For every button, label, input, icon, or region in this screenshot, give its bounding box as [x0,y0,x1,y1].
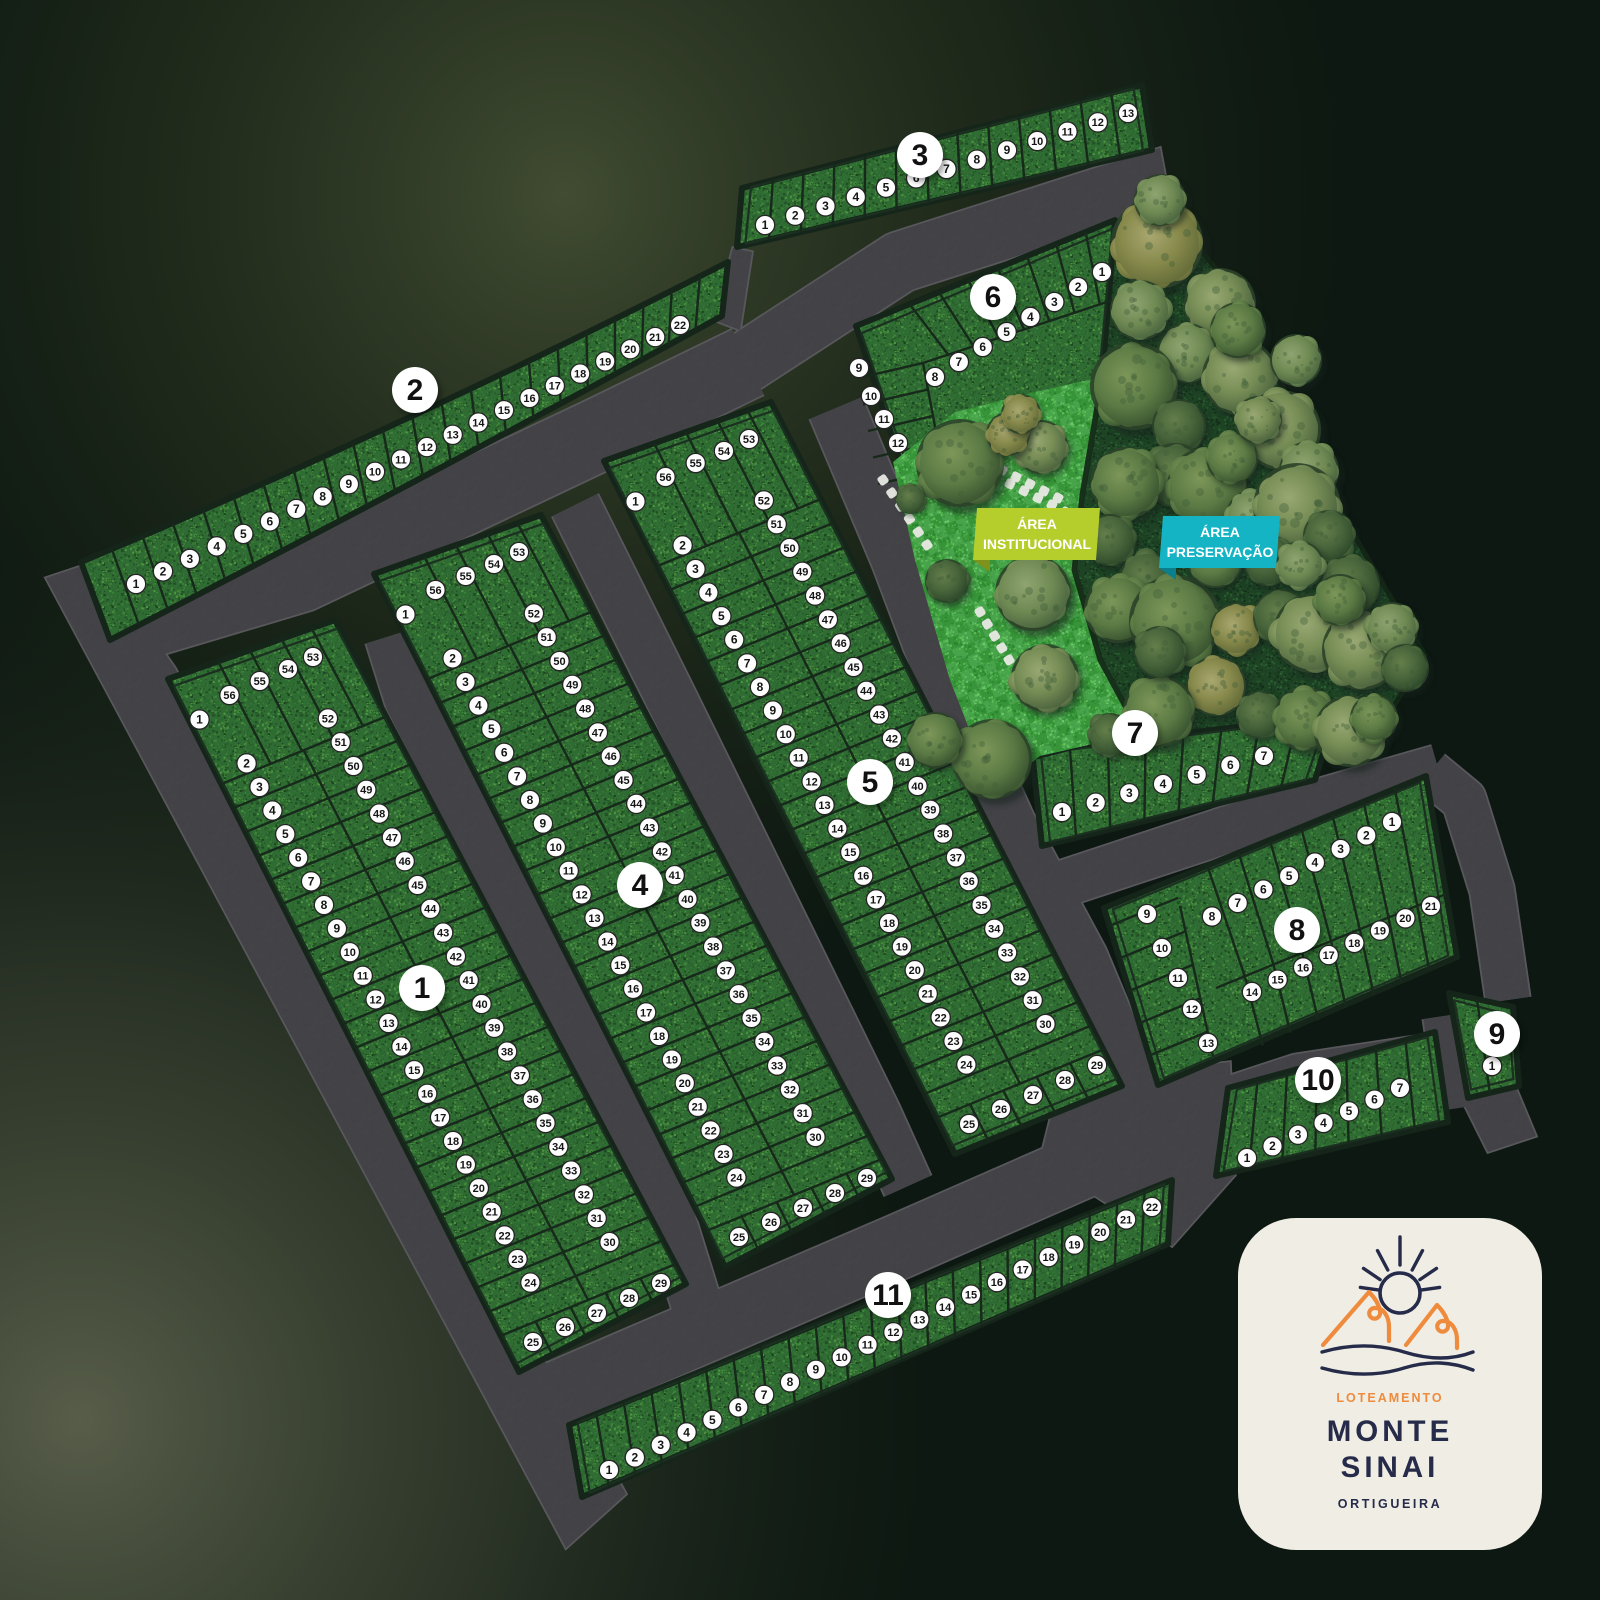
svg-text:INSTITUCIONAL: INSTITUCIONAL [983,536,1092,552]
svg-text:24: 24 [730,1173,743,1185]
svg-text:1: 1 [1489,1059,1496,1073]
svg-text:29: 29 [861,1173,873,1185]
svg-text:53: 53 [307,652,319,664]
svg-text:2: 2 [449,651,456,665]
svg-text:52: 52 [322,713,334,725]
svg-text:27: 27 [797,1203,809,1215]
svg-text:3: 3 [256,780,263,794]
svg-text:10: 10 [369,467,381,479]
svg-text:43: 43 [437,928,449,940]
svg-text:9: 9 [1489,1018,1506,1051]
svg-text:1: 1 [1244,1151,1251,1165]
svg-text:22: 22 [498,1230,510,1242]
svg-text:31: 31 [1027,995,1039,1007]
svg-text:55: 55 [690,458,702,470]
svg-text:56: 56 [659,472,671,484]
svg-text:35: 35 [975,900,987,912]
svg-text:9: 9 [334,922,341,936]
svg-text:2: 2 [160,564,167,578]
svg-text:6: 6 [979,340,986,354]
svg-text:8: 8 [787,1375,794,1389]
svg-text:7: 7 [744,656,751,670]
svg-text:53: 53 [513,547,525,559]
svg-text:9: 9 [770,704,777,718]
svg-text:19: 19 [1374,926,1386,938]
svg-text:13: 13 [447,430,459,442]
svg-text:39: 39 [924,805,936,817]
svg-text:16: 16 [1297,962,1309,974]
svg-text:15: 15 [498,405,510,417]
svg-text:33: 33 [1001,948,1013,960]
svg-text:8: 8 [1289,914,1306,947]
svg-text:11: 11 [862,1340,874,1352]
svg-text:13: 13 [382,1018,394,1030]
svg-text:12: 12 [369,994,381,1006]
svg-text:40: 40 [475,999,487,1011]
svg-text:18: 18 [653,1031,665,1043]
svg-text:5: 5 [718,609,725,623]
svg-text:18: 18 [1042,1252,1054,1264]
svg-text:7: 7 [1397,1081,1404,1095]
svg-text:48: 48 [579,704,591,716]
svg-text:10: 10 [550,842,562,854]
svg-text:51: 51 [335,737,347,749]
svg-text:20: 20 [909,965,921,977]
svg-text:4: 4 [1027,310,1034,324]
svg-text:6: 6 [1227,758,1234,772]
svg-text:20: 20 [1399,913,1411,925]
svg-text:5: 5 [1286,869,1293,883]
svg-text:ORTIGUEIRA: ORTIGUEIRA [1338,1497,1442,1511]
svg-text:6: 6 [735,1400,742,1414]
svg-text:7: 7 [1261,749,1268,763]
svg-text:34: 34 [552,1142,565,1154]
svg-text:20: 20 [1094,1227,1106,1239]
svg-text:21: 21 [922,989,934,1001]
svg-text:55: 55 [254,676,266,688]
svg-text:11: 11 [793,753,805,765]
svg-text:3: 3 [1337,842,1344,856]
svg-text:2: 2 [1269,1139,1276,1153]
svg-text:5: 5 [240,527,247,541]
svg-text:1: 1 [133,577,140,591]
svg-text:9: 9 [856,361,863,375]
svg-text:12: 12 [892,438,904,450]
svg-text:49: 49 [566,680,578,692]
svg-text:MONTE: MONTE [1327,1415,1454,1448]
svg-text:5: 5 [1193,768,1200,782]
svg-text:13: 13 [1202,1038,1214,1050]
svg-text:19: 19 [599,356,611,368]
svg-text:16: 16 [991,1277,1003,1289]
svg-text:23: 23 [511,1254,523,1266]
svg-text:17: 17 [1323,950,1335,962]
svg-text:13: 13 [588,913,600,925]
svg-text:4: 4 [1320,1116,1327,1130]
svg-text:15: 15 [1271,975,1283,987]
svg-text:31: 31 [797,1108,809,1120]
svg-text:7: 7 [1234,896,1241,910]
svg-text:39: 39 [694,918,706,930]
svg-text:12: 12 [1186,1004,1198,1016]
svg-text:50: 50 [783,543,795,555]
svg-text:35: 35 [745,1013,757,1025]
svg-text:40: 40 [911,781,923,793]
svg-text:54: 54 [488,559,501,571]
svg-text:5: 5 [883,181,890,195]
svg-text:6: 6 [267,514,274,528]
svg-text:1: 1 [414,972,431,1005]
svg-text:7: 7 [514,769,521,783]
svg-text:7: 7 [1127,717,1144,750]
svg-text:2: 2 [1092,796,1099,810]
svg-text:17: 17 [434,1112,446,1124]
svg-text:3: 3 [187,552,194,566]
svg-text:19: 19 [1068,1240,1080,1252]
svg-text:54: 54 [718,446,731,458]
svg-text:38: 38 [501,1047,513,1059]
svg-text:12: 12 [575,889,587,901]
svg-text:2: 2 [1363,828,1370,842]
svg-text:14: 14 [472,417,485,429]
svg-text:44: 44 [630,799,643,811]
svg-text:18: 18 [447,1136,459,1148]
svg-text:36: 36 [527,1094,539,1106]
svg-text:48: 48 [809,591,821,603]
svg-text:19: 19 [896,942,908,954]
svg-text:13: 13 [1122,108,1134,120]
svg-text:48: 48 [373,809,385,821]
svg-text:26: 26 [559,1322,571,1334]
svg-text:1: 1 [606,1463,613,1477]
svg-text:23: 23 [717,1149,729,1161]
svg-text:4: 4 [1160,777,1167,791]
svg-text:26: 26 [765,1217,777,1229]
svg-text:44: 44 [424,904,437,916]
svg-text:1: 1 [402,607,409,621]
svg-text:2: 2 [1075,280,1082,294]
svg-text:1: 1 [1059,805,1066,819]
svg-text:8: 8 [757,680,764,694]
svg-text:14: 14 [831,824,844,836]
svg-text:29: 29 [1091,1060,1103,1072]
svg-text:3: 3 [1295,1128,1302,1142]
svg-text:31: 31 [591,1213,603,1225]
svg-text:33: 33 [771,1061,783,1073]
svg-text:9: 9 [346,477,353,491]
svg-text:14: 14 [601,937,614,949]
svg-text:2: 2 [407,374,424,407]
svg-text:46: 46 [399,856,411,868]
svg-text:1: 1 [632,494,639,508]
svg-text:10: 10 [1301,1064,1334,1097]
svg-text:16: 16 [523,393,535,405]
svg-text:ÁREA: ÁREA [1017,516,1057,532]
svg-text:20: 20 [624,344,636,356]
svg-text:11: 11 [395,454,407,466]
svg-text:21: 21 [649,332,661,344]
svg-text:54: 54 [282,664,295,676]
svg-text:12: 12 [805,776,817,788]
svg-text:47: 47 [822,614,834,626]
svg-text:17: 17 [1017,1265,1029,1277]
svg-text:1: 1 [762,218,769,232]
svg-text:25: 25 [733,1232,745,1244]
svg-text:15: 15 [614,960,626,972]
svg-text:21: 21 [692,1102,704,1114]
svg-text:39: 39 [488,1023,500,1035]
svg-text:22: 22 [934,1012,946,1024]
svg-text:50: 50 [347,761,359,773]
svg-text:6: 6 [985,281,1002,314]
svg-text:47: 47 [386,832,398,844]
svg-text:7: 7 [956,355,963,369]
svg-text:13: 13 [818,800,830,812]
svg-text:4: 4 [213,539,220,553]
svg-text:2: 2 [243,756,250,770]
svg-text:37: 37 [950,852,962,864]
svg-text:1: 1 [1099,265,1106,279]
svg-text:49: 49 [360,785,372,797]
svg-text:4: 4 [852,190,859,204]
svg-text:40: 40 [681,894,693,906]
svg-text:46: 46 [605,751,617,763]
svg-text:12: 12 [887,1327,899,1339]
svg-text:42: 42 [886,733,898,745]
svg-text:10: 10 [780,729,792,741]
svg-text:33: 33 [565,1166,577,1178]
svg-text:28: 28 [623,1293,635,1305]
svg-text:30: 30 [603,1237,615,1249]
svg-text:26: 26 [995,1104,1007,1116]
svg-text:4: 4 [269,804,276,818]
svg-text:14: 14 [395,1042,408,1054]
svg-text:37: 37 [720,965,732,977]
svg-text:SINAI: SINAI [1341,1451,1440,1484]
svg-text:49: 49 [796,567,808,579]
svg-text:4: 4 [705,586,712,600]
svg-text:22: 22 [674,320,686,332]
svg-text:11: 11 [563,866,575,878]
svg-text:9: 9 [1144,907,1151,921]
svg-text:3: 3 [912,139,929,172]
svg-text:21: 21 [486,1207,498,1219]
svg-text:22: 22 [1146,1202,1158,1214]
svg-text:9: 9 [1004,143,1011,157]
svg-text:5: 5 [1346,1104,1353,1118]
svg-text:50: 50 [553,656,565,668]
svg-text:28: 28 [1059,1075,1071,1087]
svg-text:11: 11 [872,1279,904,1312]
svg-text:12: 12 [421,442,433,454]
svg-text:3: 3 [692,562,699,576]
svg-text:8: 8 [973,153,980,167]
svg-text:21: 21 [1425,901,1437,913]
svg-text:17: 17 [870,894,882,906]
svg-text:15: 15 [965,1290,977,1302]
svg-text:14: 14 [939,1302,952,1314]
svg-text:10: 10 [1031,136,1043,148]
svg-text:22: 22 [704,1125,716,1137]
svg-text:32: 32 [1014,971,1026,983]
svg-text:29: 29 [655,1278,667,1290]
svg-text:42: 42 [656,846,668,858]
svg-text:44: 44 [860,686,873,698]
svg-text:17: 17 [640,1007,652,1019]
svg-text:5: 5 [709,1413,716,1427]
svg-text:43: 43 [873,710,885,722]
svg-text:27: 27 [591,1308,603,1320]
svg-text:7: 7 [293,502,300,516]
svg-text:2: 2 [632,1450,639,1464]
svg-text:18: 18 [1348,938,1360,950]
svg-text:11: 11 [1062,127,1074,139]
svg-text:1: 1 [1389,815,1396,829]
svg-text:56: 56 [429,585,441,597]
svg-text:5: 5 [862,766,879,799]
svg-text:10: 10 [836,1352,848,1364]
svg-text:53: 53 [743,434,755,446]
svg-text:36: 36 [733,989,745,1001]
svg-text:ÁREA: ÁREA [1200,524,1240,540]
svg-text:8: 8 [527,793,534,807]
svg-text:21: 21 [1120,1214,1132,1226]
svg-text:8: 8 [1209,909,1216,923]
svg-text:14: 14 [1246,987,1259,999]
svg-text:10: 10 [865,391,877,403]
svg-text:LOTEAMENTO: LOTEAMENTO [1336,1391,1443,1405]
svg-text:11: 11 [357,971,369,983]
svg-text:1: 1 [196,712,203,726]
svg-text:52: 52 [528,608,540,620]
svg-text:41: 41 [463,975,475,987]
svg-text:25: 25 [963,1119,975,1131]
svg-text:4: 4 [475,699,482,713]
svg-text:55: 55 [460,571,472,583]
svg-text:11: 11 [1172,973,1184,985]
svg-text:4: 4 [683,1425,690,1439]
svg-text:3: 3 [462,675,469,689]
svg-text:34: 34 [988,924,1001,936]
svg-text:15: 15 [408,1065,420,1077]
svg-text:15: 15 [844,847,856,859]
svg-text:52: 52 [758,495,770,507]
svg-text:24: 24 [524,1278,537,1290]
svg-text:51: 51 [541,632,553,644]
svg-text:35: 35 [539,1118,551,1130]
svg-text:43: 43 [643,823,655,835]
svg-text:38: 38 [937,829,949,841]
svg-text:2: 2 [679,538,686,552]
svg-text:42: 42 [450,951,462,963]
svg-text:51: 51 [771,519,783,531]
svg-text:18: 18 [574,369,586,381]
svg-text:9: 9 [813,1363,820,1377]
svg-text:16: 16 [857,871,869,883]
svg-text:6: 6 [501,746,508,760]
svg-text:5: 5 [488,722,495,736]
svg-text:3: 3 [1051,295,1058,309]
svg-text:19: 19 [460,1160,472,1172]
svg-text:7: 7 [308,874,315,888]
svg-text:4: 4 [1312,855,1319,869]
svg-text:47: 47 [592,727,604,739]
svg-text:16: 16 [627,984,639,996]
svg-text:3: 3 [657,1438,664,1452]
svg-text:20: 20 [473,1183,485,1195]
svg-text:5: 5 [282,827,289,841]
svg-text:20: 20 [679,1078,691,1090]
svg-text:3: 3 [822,199,829,213]
svg-text:36: 36 [963,876,975,888]
svg-text:17: 17 [549,381,561,393]
svg-text:7: 7 [761,1388,768,1402]
svg-text:41: 41 [899,757,911,769]
svg-text:8: 8 [932,370,939,384]
svg-text:34: 34 [758,1037,771,1049]
svg-text:6: 6 [1260,882,1267,896]
svg-text:4: 4 [632,869,649,902]
svg-text:12: 12 [1092,117,1104,129]
svg-text:28: 28 [829,1188,841,1200]
svg-text:PRESERVAÇÃO: PRESERVAÇÃO [1167,543,1274,560]
svg-text:38: 38 [707,942,719,954]
svg-text:11: 11 [878,414,890,426]
svg-text:18: 18 [883,918,895,930]
svg-text:45: 45 [411,880,423,892]
svg-text:9: 9 [540,817,547,831]
svg-text:41: 41 [669,870,681,882]
svg-text:10: 10 [1156,943,1168,955]
svg-text:6: 6 [1371,1093,1378,1107]
svg-text:56: 56 [223,690,235,702]
svg-text:30: 30 [1039,1019,1051,1031]
svg-text:10: 10 [344,947,356,959]
svg-text:32: 32 [784,1084,796,1096]
svg-text:45: 45 [617,775,629,787]
svg-text:13: 13 [913,1315,925,1327]
svg-text:45: 45 [847,662,859,674]
svg-text:8: 8 [321,898,328,912]
svg-text:23: 23 [947,1036,959,1048]
svg-text:16: 16 [421,1089,433,1101]
svg-text:32: 32 [578,1189,590,1201]
svg-text:8: 8 [319,490,326,504]
svg-text:3: 3 [1126,786,1133,800]
svg-text:24: 24 [960,1060,973,1072]
svg-text:6: 6 [731,633,738,647]
svg-text:37: 37 [514,1070,526,1082]
svg-text:30: 30 [809,1132,821,1144]
svg-text:6: 6 [295,851,302,865]
svg-text:19: 19 [666,1055,678,1067]
svg-text:46: 46 [835,638,847,650]
svg-text:25: 25 [527,1337,539,1349]
svg-text:5: 5 [1003,325,1010,339]
svg-text:2: 2 [792,209,799,223]
svg-text:27: 27 [1027,1090,1039,1102]
